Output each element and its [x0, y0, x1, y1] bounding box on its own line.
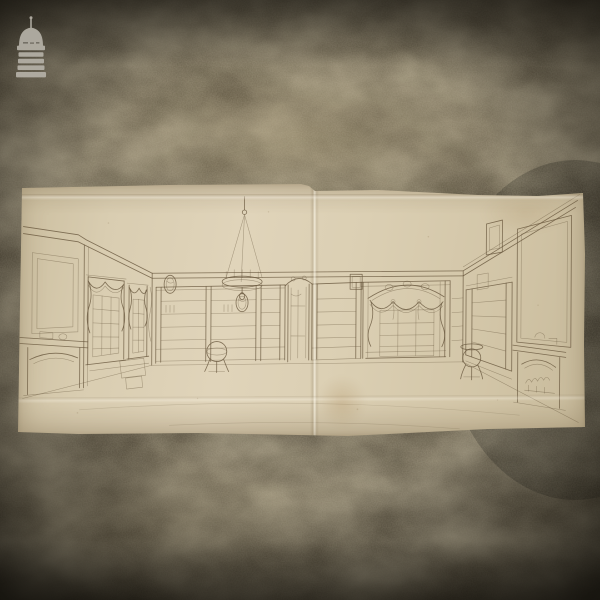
cupola-logo-icon	[13, 14, 49, 82]
paper-stain	[318, 376, 366, 428]
photo-scene	[0, 0, 600, 600]
paper-stain	[480, 192, 570, 234]
antique-drawing-paper	[18, 184, 585, 436]
paper-foxing-specks	[77, 210, 540, 416]
